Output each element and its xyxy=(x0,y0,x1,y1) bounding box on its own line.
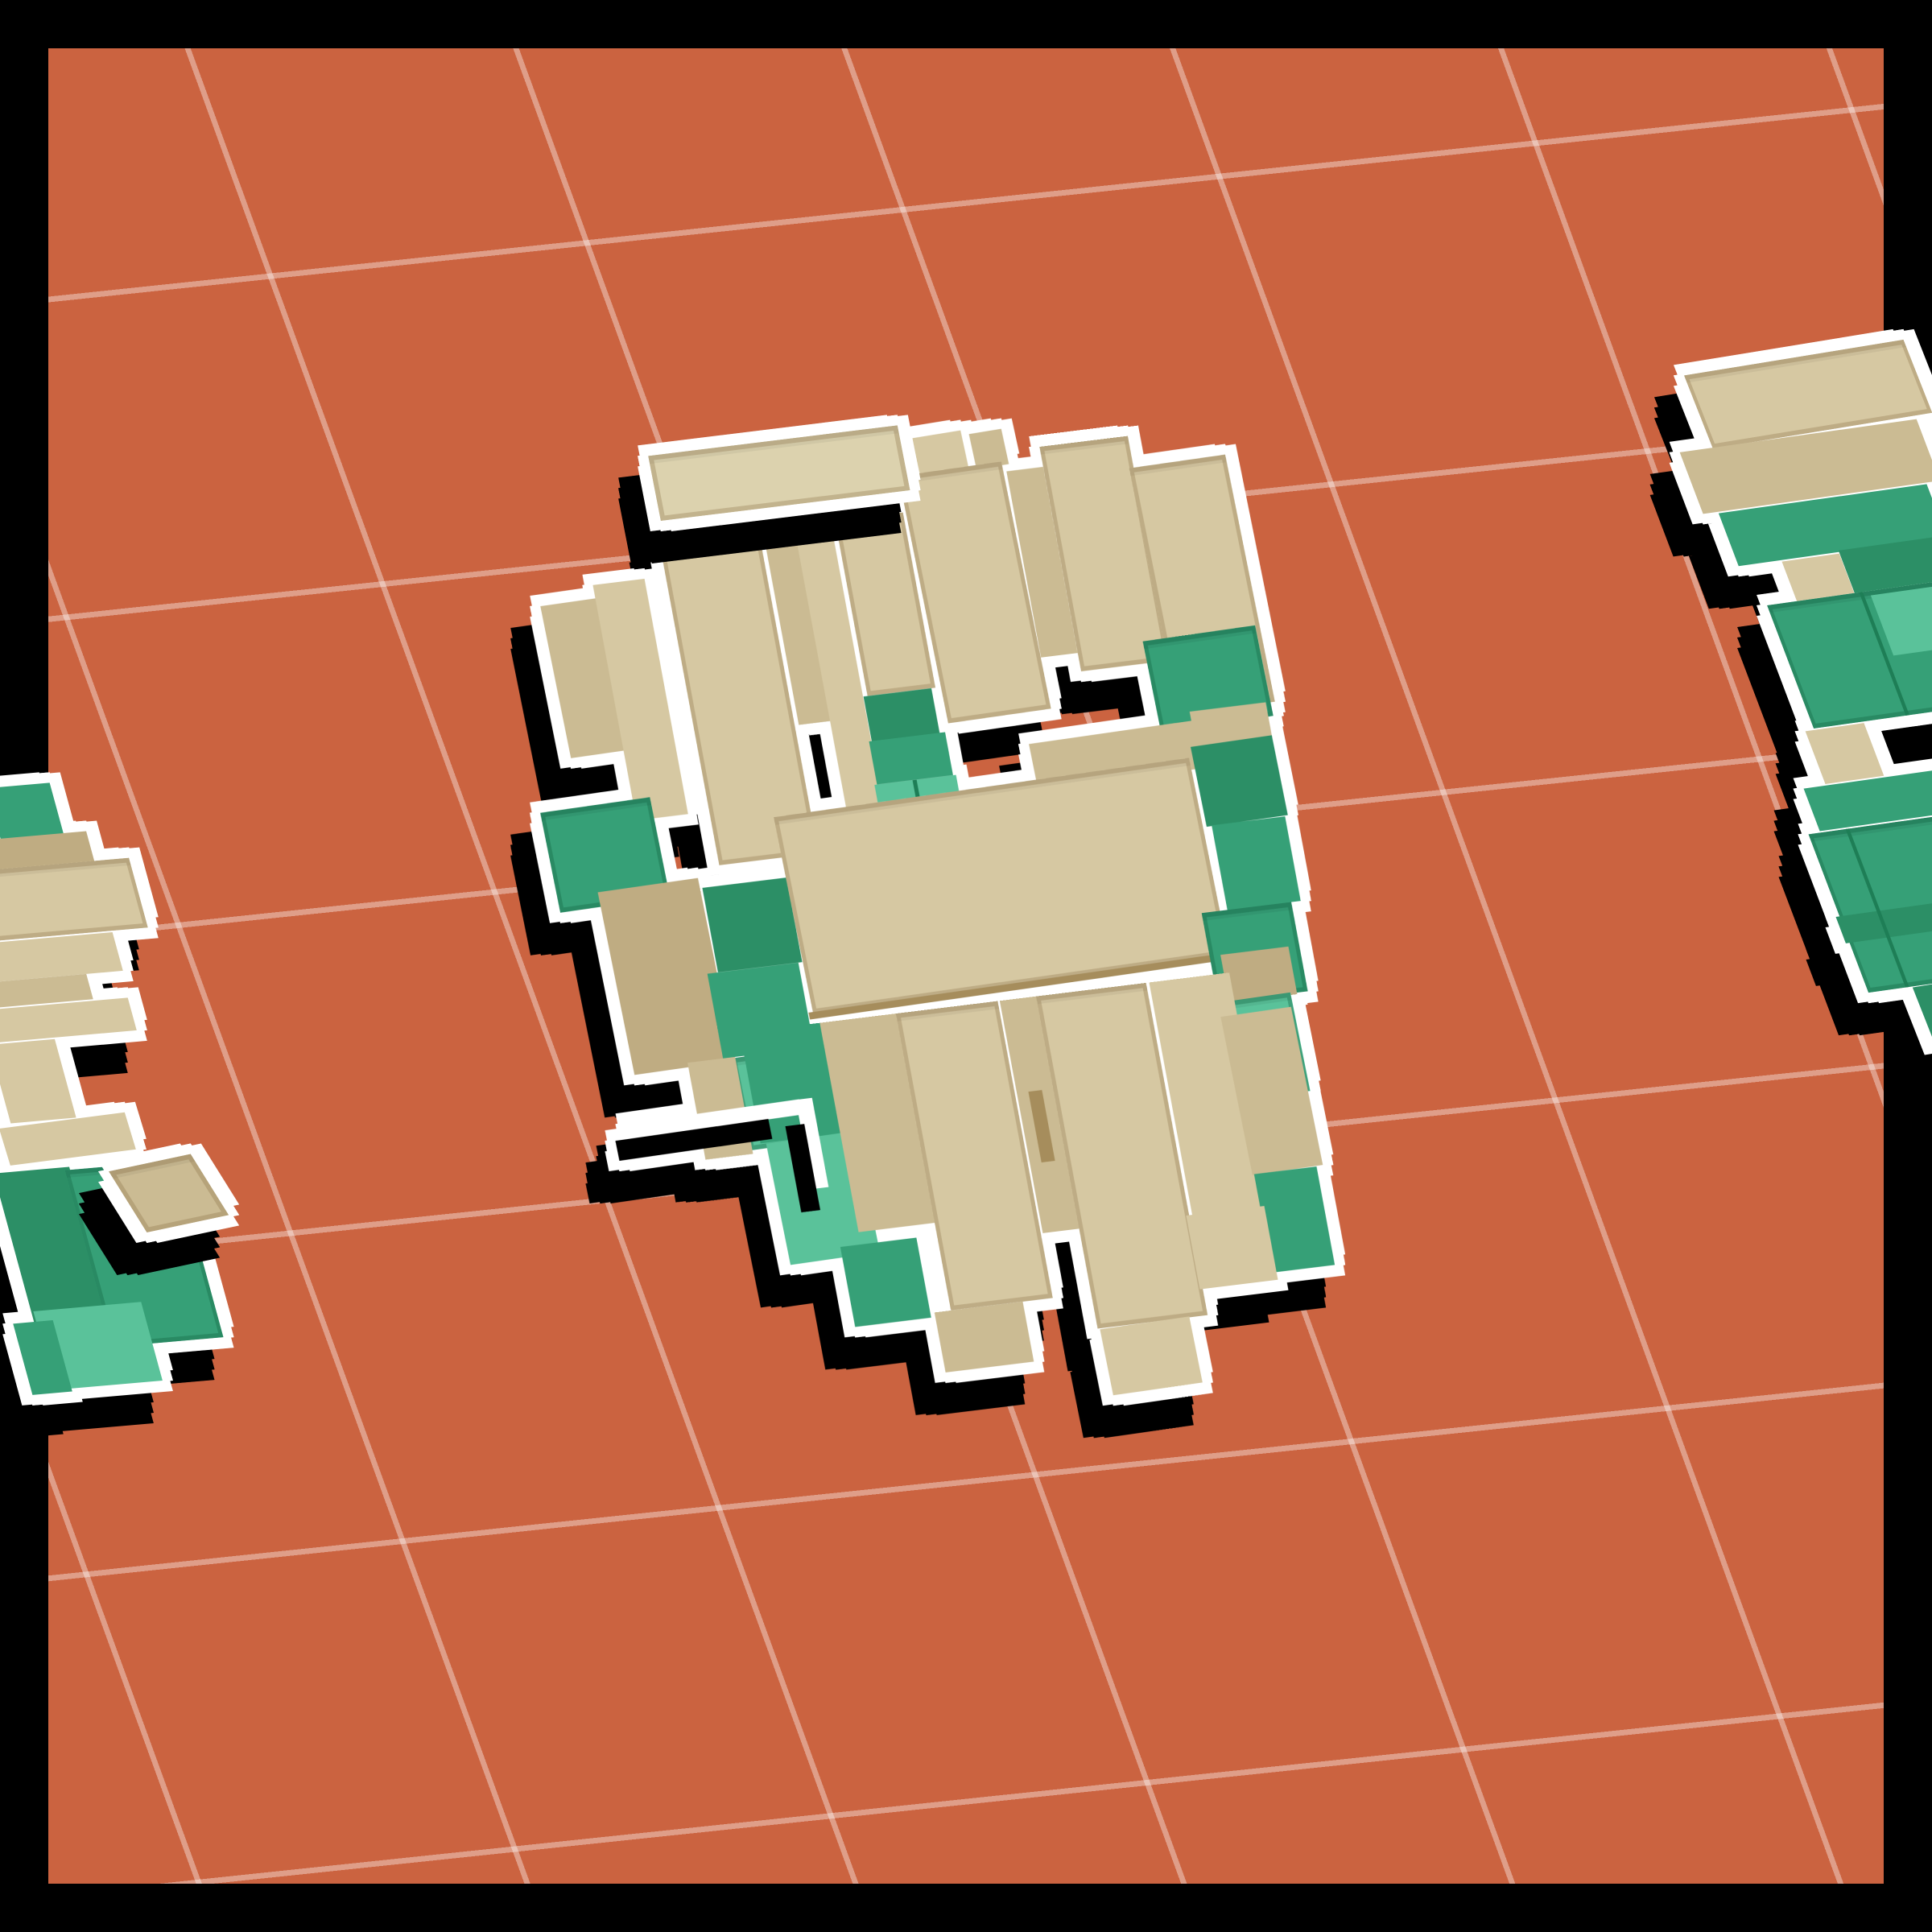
field-block xyxy=(65,1161,224,1347)
building-block xyxy=(1680,419,1932,514)
field-block xyxy=(1254,1166,1335,1273)
building-block xyxy=(0,997,137,1042)
gap-highlight xyxy=(626,1099,803,1139)
building-block xyxy=(659,529,819,865)
field-block xyxy=(1804,766,1932,831)
building-block xyxy=(1220,947,1297,1003)
building-block xyxy=(1781,554,1854,601)
field-block xyxy=(708,963,815,1059)
building-block xyxy=(898,461,1051,723)
building-block xyxy=(793,518,890,851)
field-block xyxy=(1835,896,1932,943)
field-block xyxy=(0,1167,111,1328)
building-block xyxy=(109,1154,229,1232)
building-block xyxy=(1039,436,1169,671)
field-block xyxy=(913,780,924,819)
building-block xyxy=(540,598,626,758)
gap-highlight xyxy=(796,1098,829,1189)
field-block xyxy=(1143,625,1274,732)
field-block xyxy=(1183,993,1310,1106)
building-block xyxy=(1220,1007,1323,1175)
field-block xyxy=(874,775,963,824)
field-block xyxy=(1719,484,1932,566)
building-block xyxy=(774,758,1228,1013)
field-block xyxy=(0,782,64,840)
building-block xyxy=(1129,455,1275,716)
building-block xyxy=(819,1013,937,1232)
field-block xyxy=(840,1237,931,1327)
building-block xyxy=(0,1039,76,1124)
building-block xyxy=(0,858,148,942)
field-block xyxy=(702,877,802,972)
building-block xyxy=(896,1001,1053,1311)
building-block xyxy=(912,431,969,478)
field-block xyxy=(1839,537,1932,593)
building-block xyxy=(935,1302,1034,1373)
map-frame xyxy=(0,0,1932,1932)
building-block xyxy=(0,1113,136,1166)
field-block xyxy=(13,1320,72,1395)
field-block xyxy=(1846,828,1909,987)
building-block xyxy=(1149,972,1272,1215)
building-block xyxy=(1806,723,1885,784)
field-block xyxy=(732,1043,854,1150)
building-block xyxy=(687,1057,753,1160)
building-block xyxy=(1029,720,1203,791)
building-block xyxy=(592,579,687,820)
gap-shadow xyxy=(786,1124,820,1212)
field-block xyxy=(1859,592,1909,716)
field-block xyxy=(1212,816,1301,910)
building-block xyxy=(648,425,910,521)
gap-shadow xyxy=(615,1119,772,1161)
building-block xyxy=(1028,1090,1055,1162)
field-block xyxy=(740,1022,843,1143)
field-block xyxy=(1202,902,1308,1003)
building-block xyxy=(1000,996,1082,1233)
field-block xyxy=(1871,586,1932,656)
building-block xyxy=(1036,983,1207,1329)
field-block xyxy=(864,688,940,741)
field-block xyxy=(33,1302,163,1389)
building-block xyxy=(1100,1316,1202,1395)
building-block xyxy=(762,519,834,725)
field-block xyxy=(1913,974,1932,1044)
settlement-layer xyxy=(0,0,1932,1932)
building-block xyxy=(969,429,1009,469)
field-block xyxy=(1191,735,1288,827)
field-block xyxy=(540,797,670,912)
field-block xyxy=(869,733,953,785)
building-block xyxy=(0,932,123,982)
building-block xyxy=(1190,702,1273,747)
building-block xyxy=(808,955,1216,1020)
building-block xyxy=(1006,467,1077,658)
building-block xyxy=(1684,340,1932,448)
building-block xyxy=(1186,1206,1278,1290)
field-block xyxy=(766,1131,880,1265)
building-block xyxy=(835,512,935,696)
field-block xyxy=(1767,582,1932,729)
building-block xyxy=(598,878,735,1075)
field-block xyxy=(1809,813,1932,993)
building-block xyxy=(0,832,95,873)
building-block xyxy=(0,974,93,1008)
